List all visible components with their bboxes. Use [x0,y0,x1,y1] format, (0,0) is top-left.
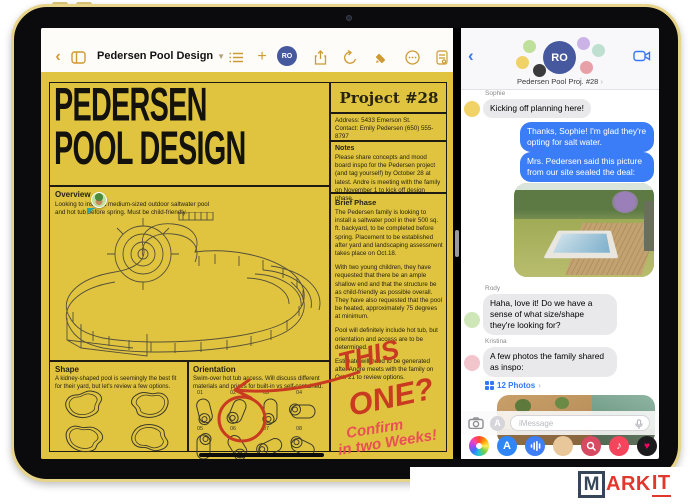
collaborator-presence-avatar [91,192,107,208]
front-camera [346,15,352,21]
images-search-app-icon[interactable] [581,436,601,456]
pool-wireframe-illustration [51,212,327,358]
messages-header: ‹ RO Pedersen Pool Proj. #28 › [461,28,659,90]
markit-watermark: M ARK IT [410,467,700,504]
share-icon[interactable] [311,48,329,66]
watermark-m-logo: M [578,471,605,498]
more-options-icon[interactable] [403,48,421,66]
document-format-icon[interactable] [433,48,451,66]
brief-paragraph-3: Pool will definitely include hot tub, bu… [335,327,443,352]
poster-title: PEDERSENPOOL DESIGN [54,84,246,171]
sender-name: Sophie [485,90,659,97]
message-row: Haha, love it! Do we have a sense of wha… [461,294,659,335]
pages-app-window: 9:41 AMTue Oct 18 ••• ‹ Pedersen Pool De… [41,28,453,459]
shape-heading: Shape [55,365,181,374]
sender-name: Kristina [485,338,659,345]
screenshot-stage: 9:41 AMTue Oct 18 ••• ‹ Pedersen Pool De… [0,0,700,504]
project-contact: Contact: Emily Pedersen (650) 555-8797 [335,125,445,141]
app-store-icon[interactable]: A [497,436,517,456]
imessage-placeholder: iMessage [519,419,553,428]
avatar-kristina [464,355,480,371]
link-chevron-icon: › [538,381,541,390]
message-row: Mrs. Pedersen said this picture from our… [461,152,659,182]
sender-label-row: Sophie [461,90,659,98]
orientation-heading: Orientation [193,365,325,374]
pool-design-document[interactable]: PEDERSENPOOL DESIGN Project #28 Address:… [41,72,453,459]
imessage-app-strip: A ♪ ♥ [461,436,659,456]
vertical-rule [329,82,331,452]
ipad-device: 9:41 AMTue Oct 18 ••• ‹ Pedersen Pool De… [11,4,681,482]
message-bubble-received[interactable]: Haha, love it! Do we have a sense of wha… [483,294,617,335]
notes-heading: Notes [335,145,443,152]
cluster-avatar [516,56,529,69]
message-composer: A iMessage [461,411,659,435]
brief-paragraph-1: The Pedersen family is looking to instal… [335,209,443,258]
collaboration-avatar-button[interactable]: RO [277,46,297,66]
message-bubble-received[interactable]: A few photos the family shared as inspo: [483,347,617,377]
brief-paragraph-4: Estimate will need to be generated after… [335,358,443,383]
watermark-it: IT [652,472,671,497]
messages-back-button[interactable]: ‹ [468,46,474,66]
photo-pool-water [553,234,610,253]
orientation-body: Swim-over hot tub access. Will discuss d… [193,376,325,392]
memoji-stickers-icon[interactable] [553,436,573,456]
undo-icon[interactable] [341,48,359,66]
add-icon[interactable]: + [253,48,271,66]
pages-toolbar: ‹ Pedersen Pool Design▼ + RO [41,28,453,72]
group-logo-avatar[interactable]: RO [543,41,576,74]
messages-app-window: ••• 100% ‹ RO Pedersen Pool Proj. #28 › [461,28,659,459]
message-bubble-received[interactable]: Kicking off planning here! [483,99,591,118]
project-address: Address: 5433 Emerson St. [335,117,445,125]
group-name[interactable]: Pedersen Pool Proj. #28 › [461,77,659,86]
message-row: Kicking off planning here! [461,99,659,118]
shape-orientation-rule [187,360,189,452]
audio-message-app-icon[interactable] [525,436,545,456]
avatar-sophie [464,101,480,117]
message-row: Thanks, Sophie! I'm glad they're opting … [461,122,659,152]
camera-icon[interactable] [468,417,484,429]
sidebar-icon[interactable] [69,48,87,66]
document-title[interactable]: Pedersen Pool Design▼ [97,50,225,62]
watermark-ark: ARK [606,473,651,496]
project-rule [329,112,447,114]
brief-paragraph-2: With two young children, they have reque… [335,264,443,321]
facetime-video-icon[interactable] [633,50,651,62]
project-number-heading: Project #28 [333,89,445,107]
sender-name: Rody [485,285,659,292]
sender-label-row: Kristina [461,338,659,346]
imessage-input[interactable]: iMessage [510,415,650,431]
title-chevron-icon: ▼ [217,52,225,61]
pool-photo-attachment[interactable] [514,183,654,277]
cluster-avatar [523,40,536,53]
cluster-avatar [580,61,593,74]
group-chevron-icon: › [600,77,603,86]
message-bubble-sent[interactable]: Thanks, Sophie! I'm glad they're opting … [520,122,654,152]
photo-lilac-bush [612,191,638,213]
shape-options [53,388,185,454]
ipad-screen: 9:41 AMTue Oct 18 ••• ‹ Pedersen Pool De… [41,28,659,459]
overview-heading: Overview [55,190,215,199]
message-bubble-sent[interactable]: Mrs. Pedersen said this picture from our… [520,152,654,182]
avatar-rody [464,312,480,328]
markup-pen-icon[interactable] [373,48,391,66]
photos-app-icon[interactable] [469,436,489,456]
splitview-divider[interactable] [453,28,461,459]
message-row: A few photos the family shared as inspo: [461,347,659,377]
photo-fence [644,201,654,251]
dictation-mic-icon[interactable] [635,419,643,430]
home-indicator[interactable] [199,453,324,457]
title-rule [49,185,330,187]
view-options-icon[interactable] [227,48,245,66]
cluster-avatar [592,44,605,57]
imessage-appstore-icon[interactable]: A [490,416,505,431]
cluster-avatar [577,37,590,50]
shared-photos-link[interactable]: 12 Photos › [485,381,541,390]
music-app-icon[interactable]: ♪ [609,436,629,456]
middle-rule [49,360,330,362]
cluster-avatar [533,64,546,77]
back-button[interactable]: ‹ [49,48,67,66]
collage-cactus [555,397,569,409]
digital-touch-icon[interactable]: ♥ [637,436,657,456]
splitview-drag-handle[interactable] [455,230,459,257]
sender-label-row: Rody [461,285,659,293]
photos-grid-icon [485,381,494,390]
brief-heading: Brief Phase [335,198,443,207]
notes-body: Please share concepts and mood board ins… [335,154,443,203]
